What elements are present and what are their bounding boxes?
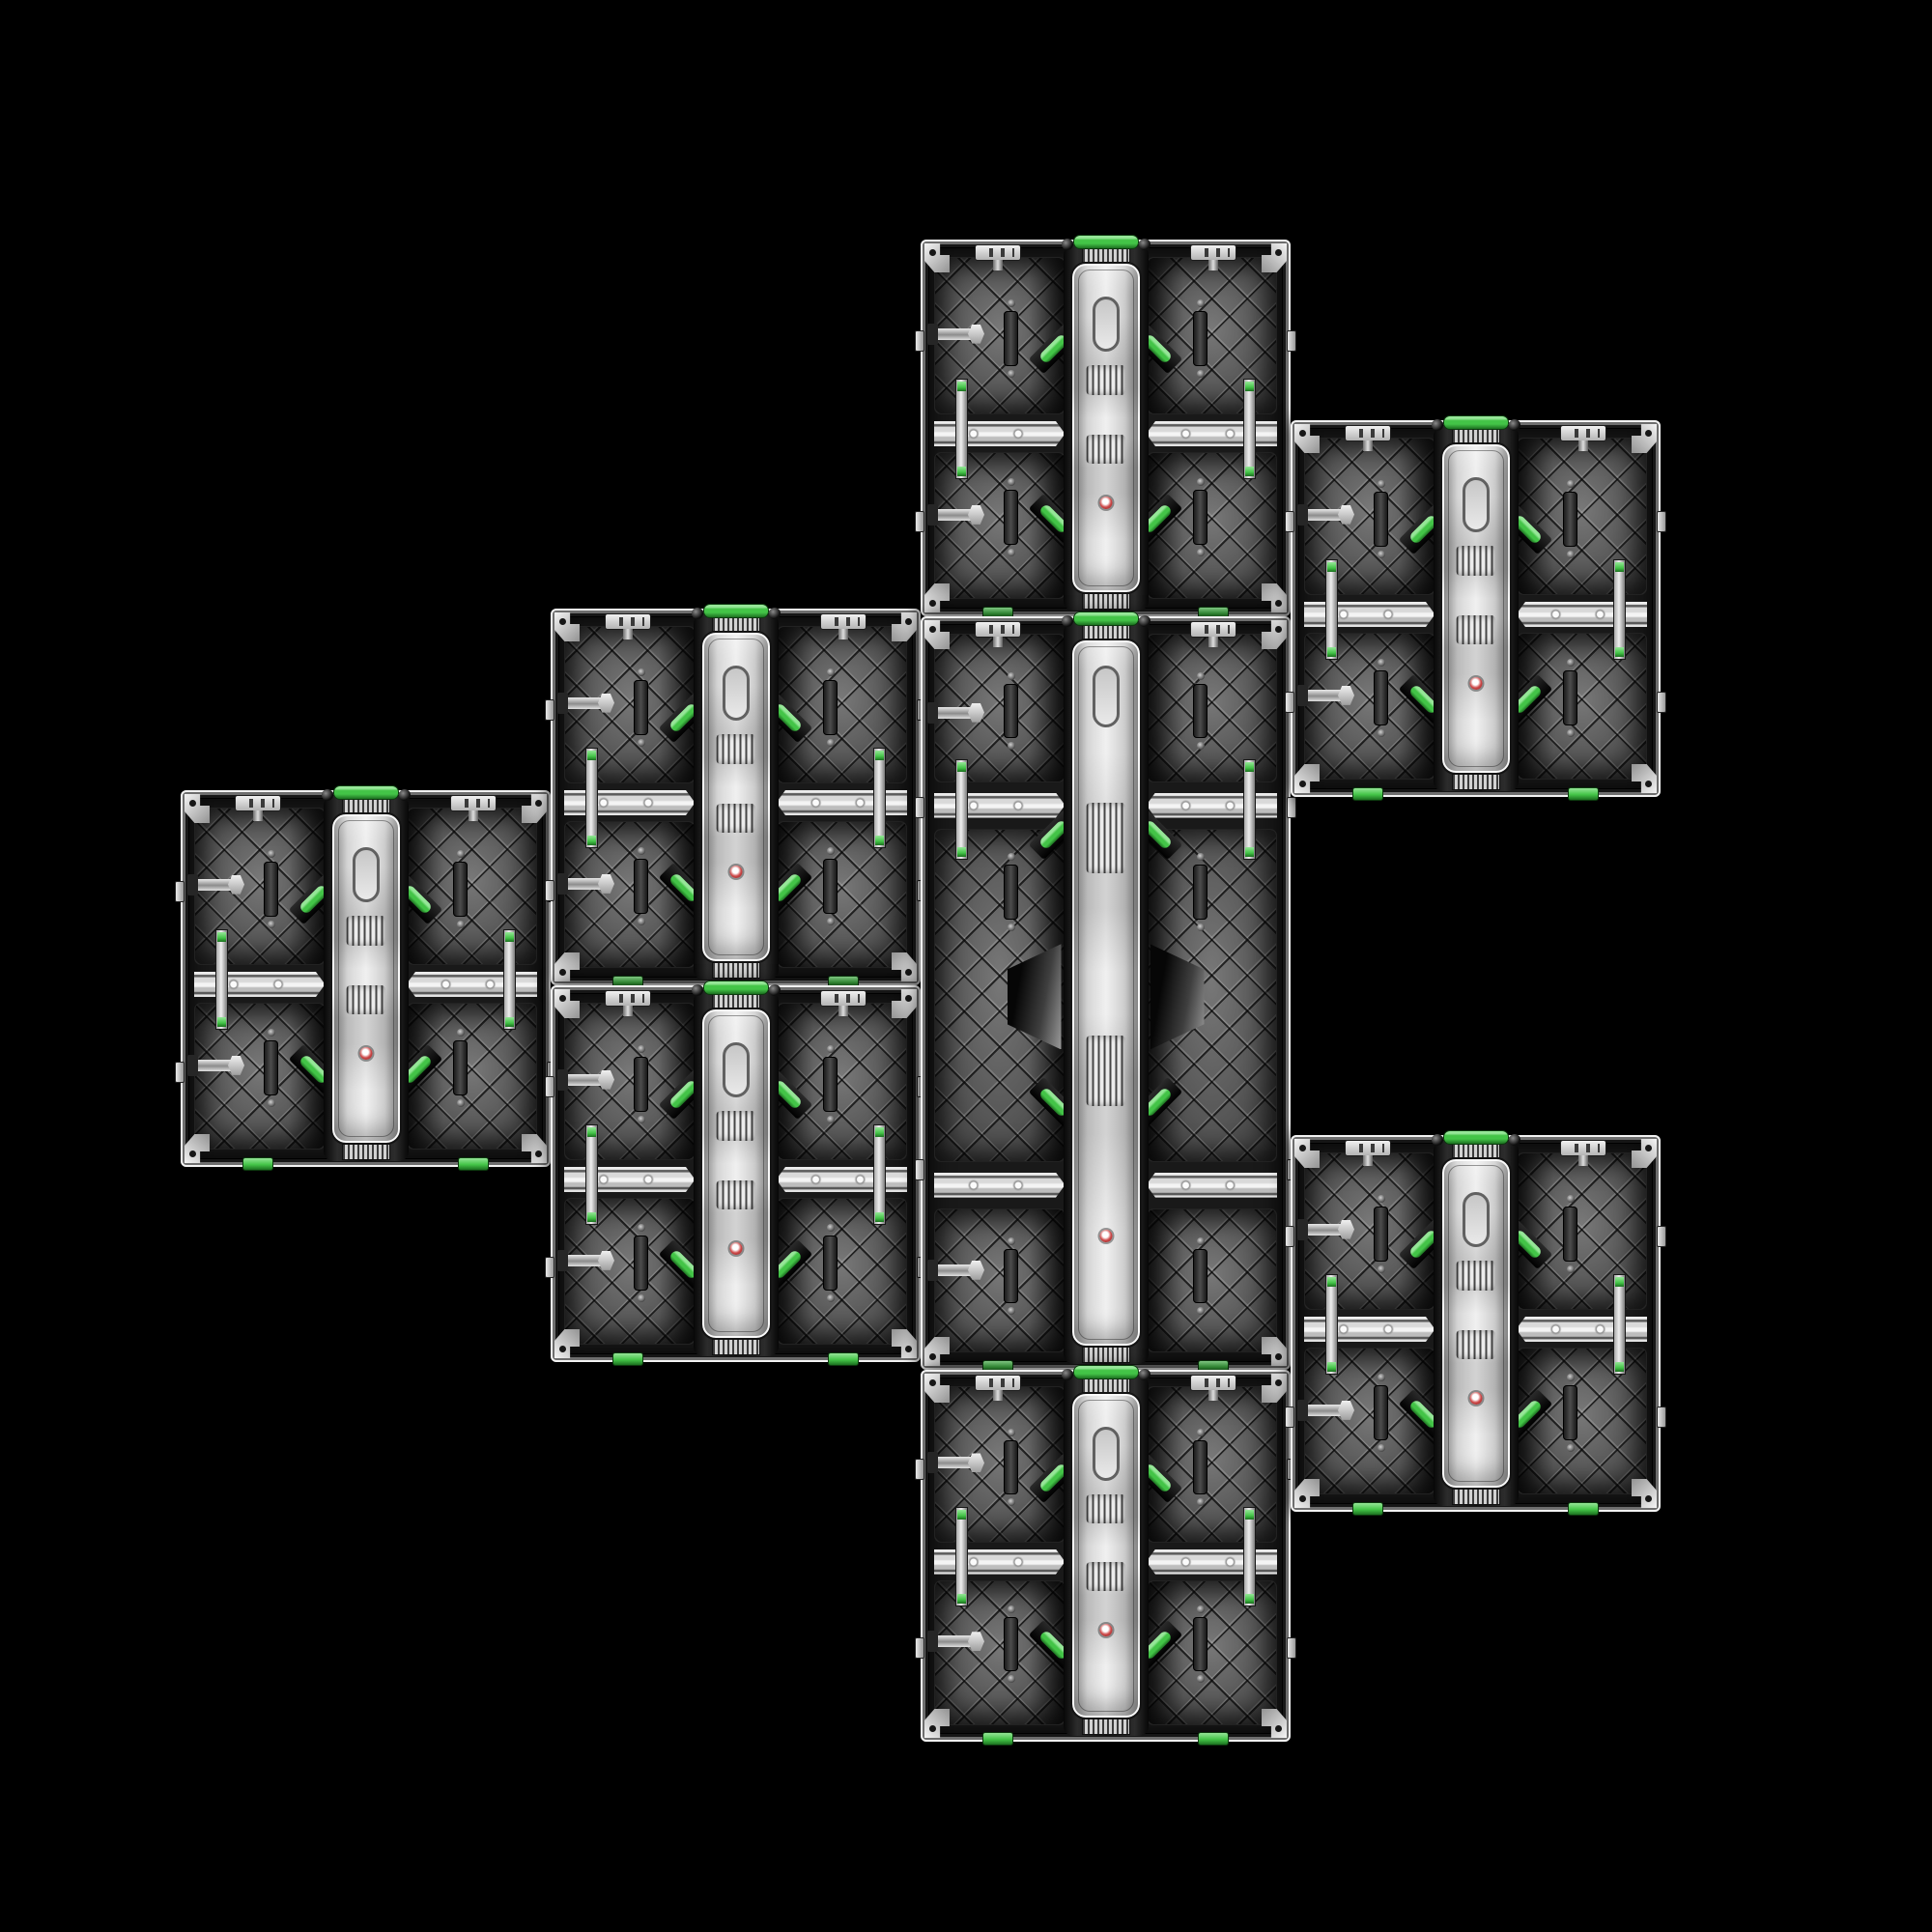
foot-pad (458, 1157, 489, 1171)
edge-connector-tab (1657, 692, 1666, 713)
module-handle (634, 1057, 648, 1112)
indicator-pin (1469, 677, 1482, 690)
module-handle (264, 862, 278, 917)
spine-connector (1452, 1489, 1500, 1505)
cross-beam (934, 793, 1065, 818)
side-rail (873, 748, 886, 847)
edge-connector-tab (1657, 1226, 1666, 1247)
edge-connector-tab (1285, 511, 1294, 532)
module-handle (1193, 1617, 1207, 1671)
spine-column (1064, 1376, 1149, 1736)
quilt-quadrant (1147, 452, 1278, 599)
side-rail (1325, 1274, 1338, 1374)
foot-pad (1352, 1502, 1383, 1516)
t-lock-handle (1300, 1405, 1350, 1416)
edge-connector-tab (915, 1459, 924, 1480)
module-handle (1004, 1617, 1018, 1671)
indicator-pin (729, 1242, 742, 1255)
top-clamp (1190, 621, 1236, 638)
module-handle (1004, 311, 1018, 366)
center-spine-handle (1070, 262, 1142, 594)
green-latch-bar (1073, 611, 1139, 626)
side-rail (585, 1124, 598, 1224)
center-spine-handle (1440, 1157, 1512, 1490)
center-spine-handle (1440, 442, 1512, 775)
module-handle (823, 1057, 838, 1112)
module-handle (1004, 490, 1018, 545)
t-lock-handle (930, 1635, 980, 1647)
module-handle (1193, 1249, 1207, 1303)
cross-beam (1304, 602, 1435, 627)
quilt-quadrant (777, 1198, 908, 1345)
green-latch-bar (1073, 1365, 1139, 1379)
edge-connector-tab (545, 880, 554, 901)
spine-column (694, 614, 779, 980)
module-handle (1563, 1385, 1577, 1440)
cross-beam (934, 1549, 1065, 1575)
quilt-quadrant (1147, 1386, 1278, 1543)
cross-beam (564, 790, 696, 815)
top-clamp (975, 244, 1021, 261)
module-handle (1193, 865, 1207, 919)
spine-connector (1082, 1347, 1130, 1363)
module-handle (1004, 865, 1018, 919)
edge-connector-tab (1657, 1406, 1666, 1428)
module-handle (453, 862, 468, 917)
top-clamp (605, 613, 651, 630)
top-clamp (1560, 1140, 1606, 1156)
cross-beam (564, 1167, 696, 1192)
module-handle (823, 859, 838, 914)
quilt-quadrant (777, 1003, 908, 1161)
t-lock-handle (930, 1264, 980, 1276)
vent-ribs (1086, 1036, 1125, 1106)
center-spine-handle (1070, 639, 1142, 1348)
top-clamp (1345, 1140, 1391, 1156)
t-lock-handle (560, 1074, 611, 1086)
edge-connector-tab (1287, 330, 1296, 352)
side-rail (955, 1507, 968, 1605)
spine-column (694, 991, 779, 1356)
t-lock-handle (560, 697, 611, 709)
edge-connector-tab (545, 699, 554, 721)
top-clamp (1190, 244, 1236, 261)
side-rail (873, 1124, 886, 1224)
led-cabinet (1291, 420, 1661, 797)
cross-beam (934, 421, 1065, 446)
vent-ribs (1086, 803, 1125, 873)
spine-column (1064, 622, 1149, 1364)
top-clamp (605, 990, 651, 1007)
edge-connector-tab (1657, 511, 1666, 532)
side-rail (503, 929, 516, 1029)
t-lock-handle (190, 1060, 241, 1071)
cross-beam (1304, 1317, 1435, 1342)
foot-pad (242, 1157, 273, 1171)
side-rail (1243, 759, 1256, 859)
spine-connector (712, 1339, 760, 1355)
module-handle (823, 1236, 838, 1291)
center-spine-handle (700, 631, 772, 963)
center-spine-handle (700, 1008, 772, 1340)
led-cabinet (551, 985, 921, 1362)
top-clamp (235, 795, 281, 811)
t-lock-handle (1300, 509, 1350, 521)
cross-beam (1147, 1549, 1278, 1575)
green-latch-bar (703, 604, 769, 618)
led-cabinet (181, 790, 551, 1167)
t-lock-handle (930, 1457, 980, 1468)
module-handle (1563, 1207, 1577, 1262)
led-cabinet (921, 616, 1291, 1370)
edge-connector-tab (545, 1257, 554, 1278)
t-lock-handle (560, 878, 611, 890)
led-cabinet (551, 609, 921, 985)
t-lock-handle (930, 707, 980, 719)
spine-column (1064, 245, 1149, 611)
quilt-quadrant (1517, 438, 1648, 596)
vent-ribs (716, 804, 755, 834)
cross-beam (1147, 421, 1278, 446)
indicator-pin (1099, 497, 1112, 509)
spine-column (1434, 1141, 1519, 1506)
edge-connector-tab (1285, 1406, 1294, 1428)
module-handle (1193, 1440, 1207, 1494)
led-cabinet (1291, 1135, 1661, 1512)
edge-connector-tab (915, 797, 924, 818)
module-handle (634, 680, 648, 735)
top-clamp (1560, 425, 1606, 441)
foot-pad (1568, 1502, 1599, 1516)
top-clamp (820, 990, 867, 1007)
green-latch-bar (1073, 235, 1139, 249)
vent-ribs (346, 916, 385, 946)
handle-slot (1093, 666, 1120, 727)
vent-ribs (1086, 1494, 1125, 1523)
vent-ribs (1456, 1330, 1495, 1360)
edge-connector-tab (915, 330, 924, 352)
module-handle (634, 1236, 648, 1291)
vent-ribs (716, 1180, 755, 1210)
vent-ribs (1086, 435, 1125, 465)
indicator-pin (359, 1047, 372, 1060)
spine-connector (1082, 1719, 1130, 1735)
foot-pad (1568, 787, 1599, 801)
center-spine-handle (330, 812, 402, 1145)
vent-ribs (1086, 1562, 1125, 1591)
quilt-quadrant (1147, 1208, 1278, 1352)
foot-pad (1198, 1732, 1229, 1746)
green-latch-bar (333, 785, 399, 800)
green-latch-bar (703, 980, 769, 995)
foot-pad (982, 1732, 1013, 1746)
green-latch-bar (1443, 415, 1509, 430)
edge-connector-tab (915, 1159, 924, 1180)
quilt-quadrant (407, 808, 538, 966)
vent-ribs (1456, 1261, 1495, 1291)
t-lock-handle (190, 879, 241, 891)
quilt-quadrant (777, 821, 908, 968)
cross-beam (407, 972, 538, 997)
side-rail (1325, 559, 1338, 659)
edge-connector-tab (175, 881, 185, 902)
cross-beam (1147, 1173, 1278, 1198)
quilt-quadrant (1517, 1348, 1648, 1494)
led-cabinet (921, 1370, 1291, 1742)
cross-beam (777, 790, 908, 815)
edge-connector-tab (545, 1076, 554, 1097)
module-handle (1374, 492, 1388, 547)
top-clamp (820, 613, 867, 630)
handle-slot (1463, 477, 1490, 532)
module-handle (1374, 670, 1388, 725)
foot-pad (828, 1352, 859, 1366)
top-clamp (975, 1375, 1021, 1391)
side-rail (955, 759, 968, 859)
module-handle (1374, 1385, 1388, 1440)
module-handle (823, 680, 838, 735)
top-clamp (1345, 425, 1391, 441)
handle-slot (723, 666, 750, 721)
t-lock-handle (930, 509, 980, 521)
side-rail (1613, 559, 1626, 659)
quilt-quadrant (777, 626, 908, 784)
cross-beam (1517, 1317, 1648, 1342)
side-rail (1243, 1507, 1256, 1605)
module-handle (1004, 1440, 1018, 1494)
vent-ribs (716, 1111, 755, 1141)
quilt-quadrant (1147, 1580, 1278, 1725)
module-handle (1374, 1207, 1388, 1262)
t-lock-handle (1300, 1224, 1350, 1236)
module-handle (1563, 670, 1577, 725)
side-rail (585, 748, 598, 847)
vent-ribs (1456, 615, 1495, 645)
t-lock-handle (1300, 690, 1350, 701)
side-rail (1613, 1274, 1626, 1374)
quilt-quadrant (407, 1003, 538, 1150)
indicator-pin (1099, 1624, 1112, 1636)
edge-connector-tab (1285, 692, 1294, 713)
top-clamp (1190, 1375, 1236, 1391)
quilt-quadrant (1147, 257, 1278, 415)
module-handle (453, 1040, 468, 1095)
handle-slot (1463, 1192, 1490, 1247)
cross-beam (934, 1173, 1065, 1198)
side-rail (215, 929, 228, 1029)
indicator-pin (1099, 1230, 1112, 1242)
vent-ribs (716, 734, 755, 764)
module-handle (1193, 311, 1207, 366)
spine-column (324, 796, 409, 1161)
cross-beam (194, 972, 326, 997)
scene-canvas (0, 0, 1932, 1932)
cross-beam (1147, 793, 1278, 818)
edge-connector-tab (915, 511, 924, 532)
module-handle (634, 859, 648, 914)
t-lock-handle (560, 1255, 611, 1266)
quilt-quadrant (1517, 633, 1648, 780)
module-handle (1193, 684, 1207, 738)
spine-connector (712, 962, 760, 979)
module-handle (1193, 490, 1207, 545)
spine-connector (1082, 593, 1130, 610)
vent-ribs (346, 985, 385, 1015)
edge-connector-tab (1287, 1637, 1296, 1659)
handle-slot (1093, 297, 1120, 352)
handle-slot (1093, 1427, 1120, 1481)
handle-slot (723, 1042, 750, 1097)
foot-pad (612, 1352, 643, 1366)
center-spine-handle (1070, 1392, 1142, 1719)
green-latch-bar (1443, 1130, 1509, 1145)
module-handle (1563, 492, 1577, 547)
side-rail (955, 379, 968, 478)
spine-connector (342, 1144, 390, 1160)
vent-ribs (1456, 546, 1495, 576)
side-rail (1243, 379, 1256, 478)
top-clamp (450, 795, 497, 811)
top-clamp (975, 621, 1021, 638)
module-handle (264, 1040, 278, 1095)
spine-connector (1452, 774, 1500, 790)
handle-slot (353, 847, 380, 902)
led-cabinet (921, 240, 1291, 616)
foot-pad (1352, 787, 1383, 801)
edge-connector-tab (915, 1637, 924, 1659)
cross-beam (777, 1167, 908, 1192)
indicator-pin (729, 866, 742, 878)
quilt-quadrant (1517, 1152, 1648, 1311)
edge-connector-tab (1285, 1226, 1294, 1247)
t-lock-handle (930, 328, 980, 340)
edge-connector-tab (175, 1062, 185, 1083)
quilt-quadrant (934, 1208, 1065, 1352)
module-handle (1004, 1249, 1018, 1303)
quilt-quadrant (1147, 634, 1278, 782)
edge-connector-tab (1287, 797, 1296, 818)
module-handle (1004, 684, 1018, 738)
spine-column (1434, 426, 1519, 791)
vent-ribs (1086, 365, 1125, 395)
cross-beam (1517, 602, 1648, 627)
indicator-pin (1469, 1392, 1482, 1405)
